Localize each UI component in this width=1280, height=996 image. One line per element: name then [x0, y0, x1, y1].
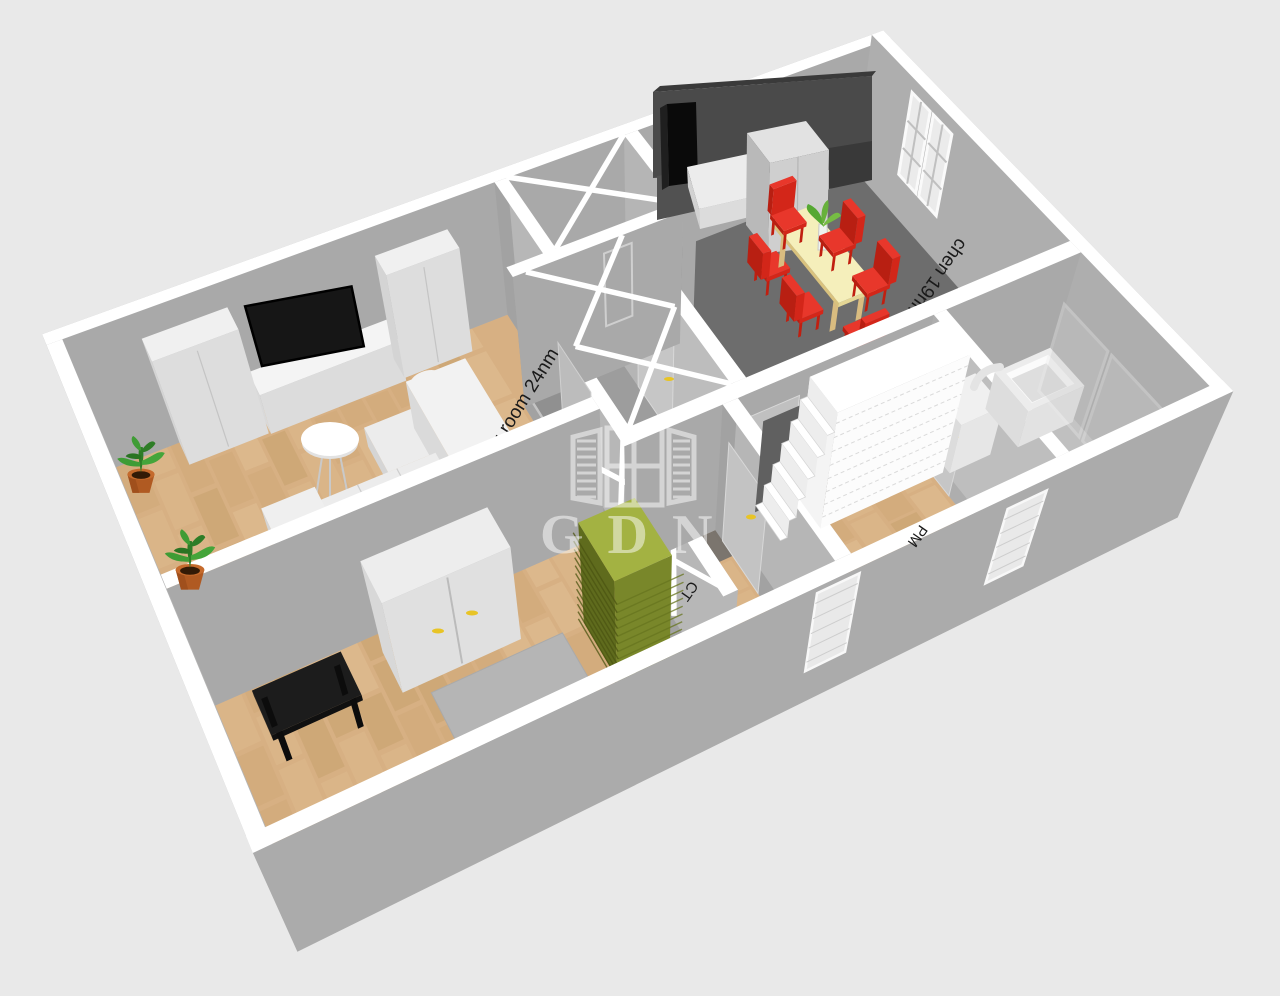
- svg-text:GDN: GDN: [540, 504, 736, 566]
